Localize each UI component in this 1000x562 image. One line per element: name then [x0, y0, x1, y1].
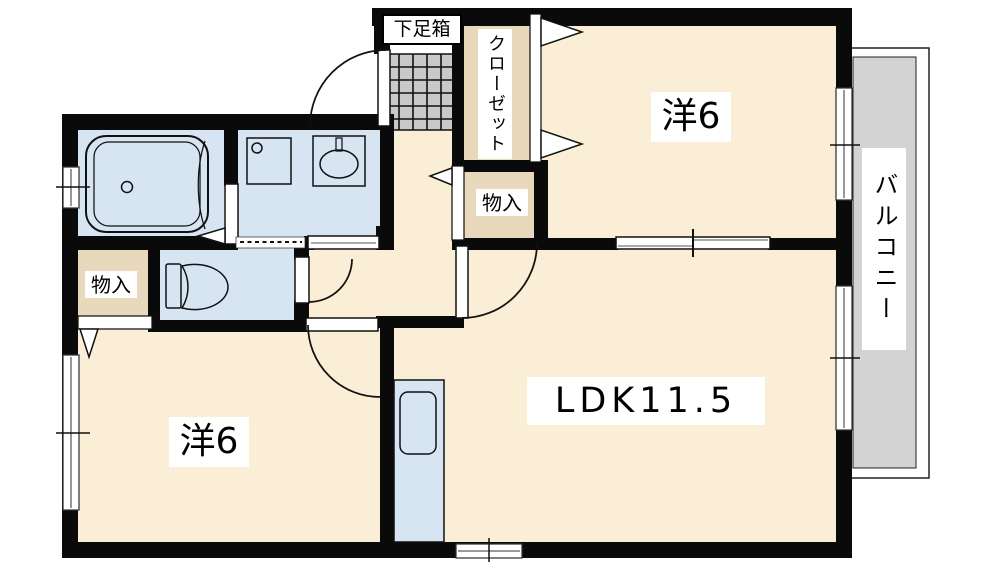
closet-label: クローゼット — [478, 29, 512, 159]
wall-segment — [380, 316, 394, 542]
washroom-floor — [237, 128, 380, 238]
storage-upper-door-opening — [452, 166, 464, 240]
wall-segment — [836, 428, 852, 542]
bedroom-upper-label: 洋6 — [651, 92, 731, 142]
wall-segment — [224, 128, 238, 186]
storage-upper-label: 物入 — [476, 189, 528, 216]
wall-segment — [380, 128, 394, 232]
wall-segment — [836, 8, 852, 90]
floor-plan: 下足箱 クローゼット 物入 物入 洋6 洋6 LDK11.5 バルコニー — [0, 0, 1000, 562]
ldk-label: LDK11.5 — [527, 377, 765, 425]
entrance-door-leaf — [378, 50, 390, 126]
storage-lower-label: 物入 — [85, 271, 137, 298]
storage-lower-door-opening — [78, 316, 152, 329]
bathroom-door-leaf — [225, 184, 238, 244]
toilet-door-leaf — [295, 257, 309, 303]
shoe-box-label: 下足箱 — [382, 14, 462, 45]
wall-segment — [534, 160, 548, 244]
closet-door-opening — [530, 14, 541, 162]
wall-segment — [768, 238, 838, 250]
bedroom-lower-door-opening — [306, 318, 378, 331]
entry-tile-grid — [385, 54, 453, 130]
balcony-label: バルコニー — [862, 148, 906, 350]
wall-segment — [148, 320, 308, 332]
wall-segment — [452, 160, 538, 172]
wall-segment — [538, 238, 618, 250]
toilet-floor — [158, 248, 294, 332]
wall-segment — [836, 198, 852, 288]
bedroom-lower-label: 洋6 — [169, 417, 249, 467]
ldk-door-leaf — [456, 246, 468, 318]
wall-segment — [62, 114, 394, 130]
